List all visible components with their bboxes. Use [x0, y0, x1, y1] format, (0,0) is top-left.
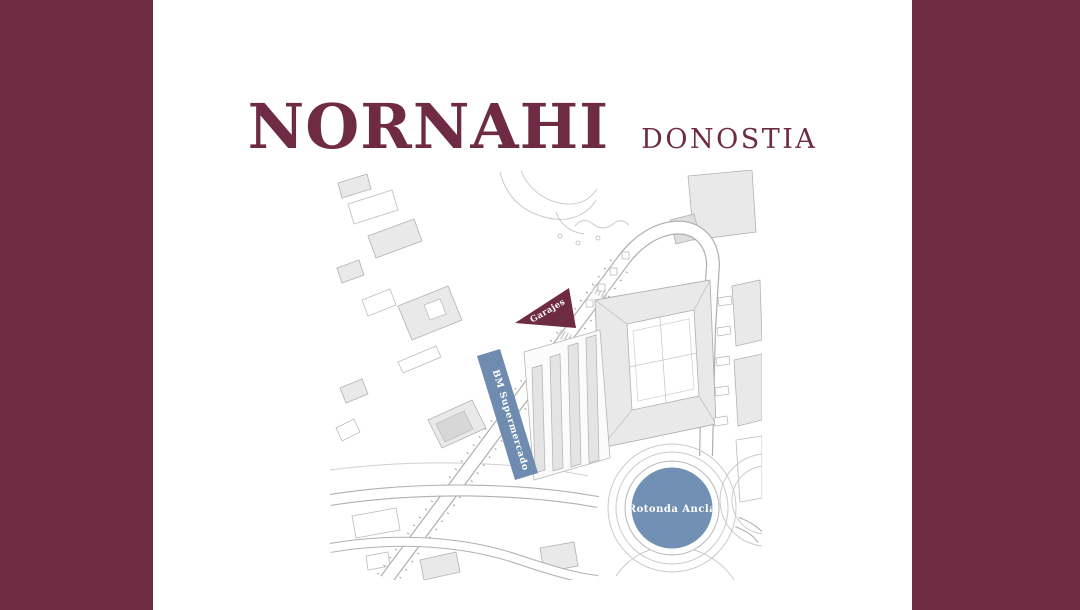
masthead: NORNAHI DONOSTIA [153, 96, 912, 158]
left-border-panel [0, 0, 153, 610]
right-border-panel [912, 0, 1080, 610]
park-paths [500, 171, 629, 245]
rotonda-ancla-label: Rotonda Ancla [628, 504, 716, 515]
site-plan-svg: Rotonda Ancla BM Supermercado Garajes [330, 170, 762, 580]
brand-title: NORNAHI [248, 96, 610, 158]
brand-subtitle: DONOSTIA [641, 126, 817, 153]
courtyard-building [595, 280, 716, 448]
site-plan-map: Rotonda Ancla BM Supermercado Garajes [330, 170, 762, 580]
striped-buildings [524, 330, 610, 480]
page: NORNAHI DONOSTIA [0, 0, 1080, 610]
